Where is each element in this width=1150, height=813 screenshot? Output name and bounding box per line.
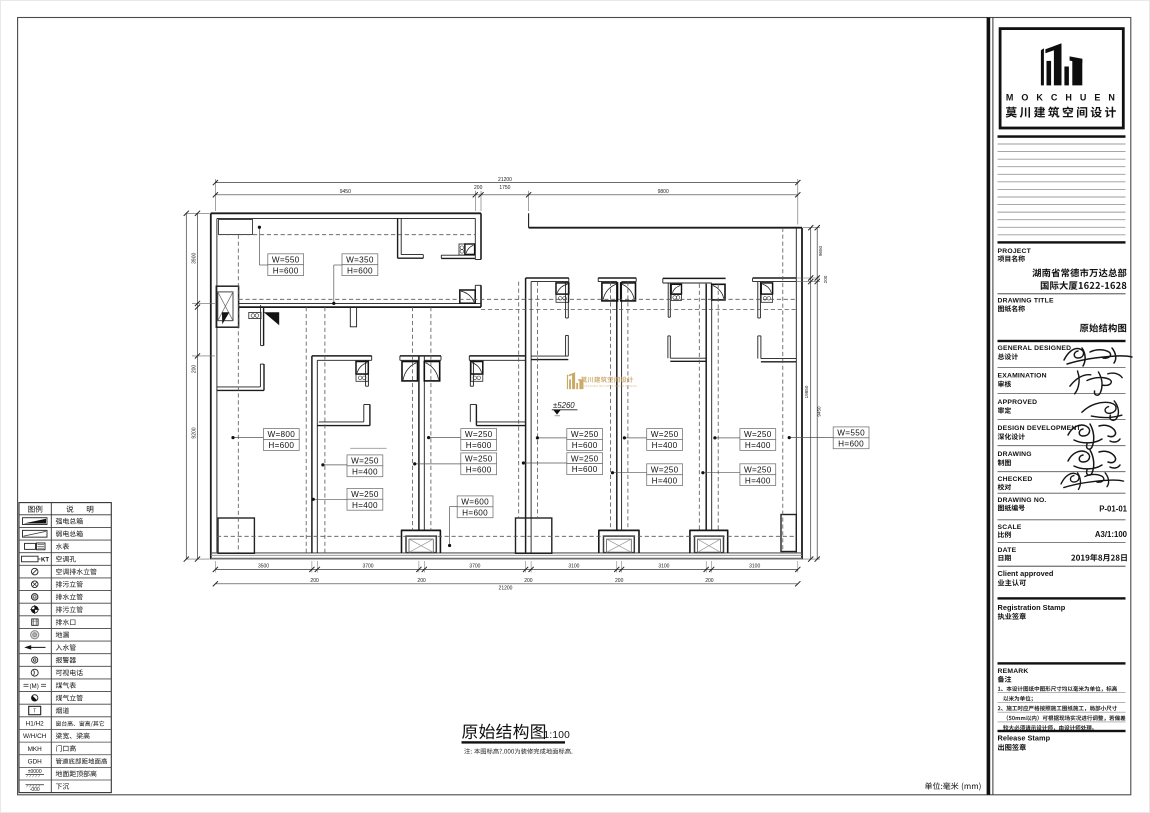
svg-text:W=250: W=250 — [744, 430, 772, 439]
svg-text:H=400: H=400 — [745, 441, 771, 450]
svg-text:DRAWING TITLE: DRAWING TITLE — [998, 298, 1054, 305]
svg-text:H=600: H=600 — [838, 439, 864, 448]
svg-text:DATE: DATE — [998, 547, 1017, 554]
svg-text:H1/H2: H1/H2 — [26, 721, 45, 728]
svg-text:200: 200 — [310, 578, 319, 584]
svg-text:KT: KT — [41, 557, 49, 563]
svg-text:W=250: W=250 — [651, 430, 679, 439]
svg-text:H=600: H=600 — [466, 441, 492, 450]
svg-text:3700: 3700 — [469, 564, 480, 570]
svg-text:W=550: W=550 — [272, 255, 300, 264]
svg-text:3900: 3900 — [191, 253, 197, 264]
svg-text:-000: -000 — [30, 787, 40, 793]
svg-text:H=400: H=400 — [652, 476, 678, 485]
svg-text:200: 200 — [524, 578, 533, 584]
svg-text:H=400: H=400 — [745, 476, 771, 485]
svg-text:H=400: H=400 — [352, 501, 378, 510]
svg-text:W=250: W=250 — [744, 465, 772, 474]
svg-text:200: 200 — [615, 578, 624, 584]
svg-text:W=250: W=250 — [351, 490, 379, 499]
svg-text:21200: 21200 — [499, 585, 513, 591]
svg-text:DESIGN DEVELOPMENT: DESIGN DEVELOPMENT — [998, 425, 1082, 432]
svg-text:H=600: H=600 — [572, 465, 598, 474]
svg-text:3700: 3700 — [362, 564, 373, 570]
svg-text:200: 200 — [474, 185, 483, 191]
svg-text:19850: 19850 — [804, 385, 809, 398]
svg-text:A3/1:100: A3/1:100 — [1095, 530, 1128, 539]
svg-text:H=600: H=600 — [466, 465, 492, 474]
svg-text:EXAMINATION: EXAMINATION — [998, 373, 1047, 380]
svg-text:Registration Stamp: Registration Stamp — [998, 603, 1066, 612]
svg-text:H=600: H=600 — [462, 508, 488, 517]
svg-text:W=250: W=250 — [465, 430, 493, 439]
svg-text:H=400: H=400 — [652, 441, 678, 450]
svg-text:PROJECT: PROJECT — [998, 248, 1032, 255]
svg-text:MOKCHUEN BUILDING SPACE DESIGN: MOKCHUEN BUILDING SPACE DESIGN — [581, 384, 637, 388]
svg-text:3100: 3100 — [749, 564, 760, 570]
svg-text:±5260: ±5260 — [553, 401, 575, 410]
svg-text:H=600: H=600 — [268, 441, 294, 450]
svg-text:SCALE: SCALE — [998, 524, 1022, 531]
svg-text:W/H/CH: W/H/CH — [23, 733, 47, 740]
svg-text:(M): (M) — [30, 683, 39, 690]
svg-text:W=600: W=600 — [461, 498, 489, 507]
svg-text:W=250: W=250 — [351, 457, 379, 466]
svg-text:DRAWING NO.: DRAWING NO. — [998, 497, 1047, 504]
svg-text:9450: 9450 — [817, 406, 822, 417]
svg-text:CHECKED: CHECKED — [998, 476, 1033, 483]
svg-text:W=800: W=800 — [267, 430, 295, 439]
svg-text:GDH: GDH — [28, 758, 43, 765]
svg-text:3500: 3500 — [258, 564, 269, 570]
svg-text:MKH: MKH — [28, 746, 43, 753]
svg-text:9650: 9650 — [818, 245, 823, 256]
svg-text:H=600: H=600 — [347, 266, 373, 275]
svg-text:W=250: W=250 — [465, 455, 493, 464]
svg-text:9450: 9450 — [340, 189, 351, 195]
svg-text:APPROVED: APPROVED — [998, 399, 1038, 406]
svg-text:W=250: W=250 — [651, 465, 679, 474]
svg-text:9200: 9200 — [191, 427, 197, 438]
svg-text:1:100: 1:100 — [544, 730, 571, 741]
svg-text:W=550: W=550 — [837, 429, 865, 438]
svg-text:200: 200 — [191, 365, 197, 374]
svg-text:21200: 21200 — [498, 177, 512, 183]
svg-text:200: 200 — [823, 275, 828, 283]
svg-text:M O K C H U E N: M O K C H U E N — [1006, 92, 1118, 102]
svg-text:3100: 3100 — [658, 564, 669, 570]
svg-text:H=600: H=600 — [273, 266, 299, 275]
svg-text:Release Stamp: Release Stamp — [998, 734, 1051, 743]
svg-text:W=250: W=250 — [571, 454, 599, 463]
svg-text:GENERAL DESIGNED: GENERAL DESIGNED — [998, 345, 1072, 352]
svg-text:W=350: W=350 — [346, 255, 374, 264]
svg-text:H=400: H=400 — [352, 467, 378, 476]
svg-text:Client approved: Client approved — [998, 569, 1054, 578]
svg-text:200: 200 — [705, 578, 714, 584]
svg-text:1750: 1750 — [499, 185, 510, 191]
svg-text:200: 200 — [417, 578, 426, 584]
svg-text:H=600: H=600 — [572, 441, 598, 450]
svg-text:REMARK: REMARK — [998, 668, 1029, 675]
svg-text:P-01-01: P-01-01 — [1099, 505, 1127, 514]
svg-text:W=250: W=250 — [571, 430, 599, 439]
svg-text:3100: 3100 — [568, 564, 579, 570]
svg-text:9800: 9800 — [658, 189, 669, 195]
svg-text:DRAWING: DRAWING — [998, 451, 1032, 458]
